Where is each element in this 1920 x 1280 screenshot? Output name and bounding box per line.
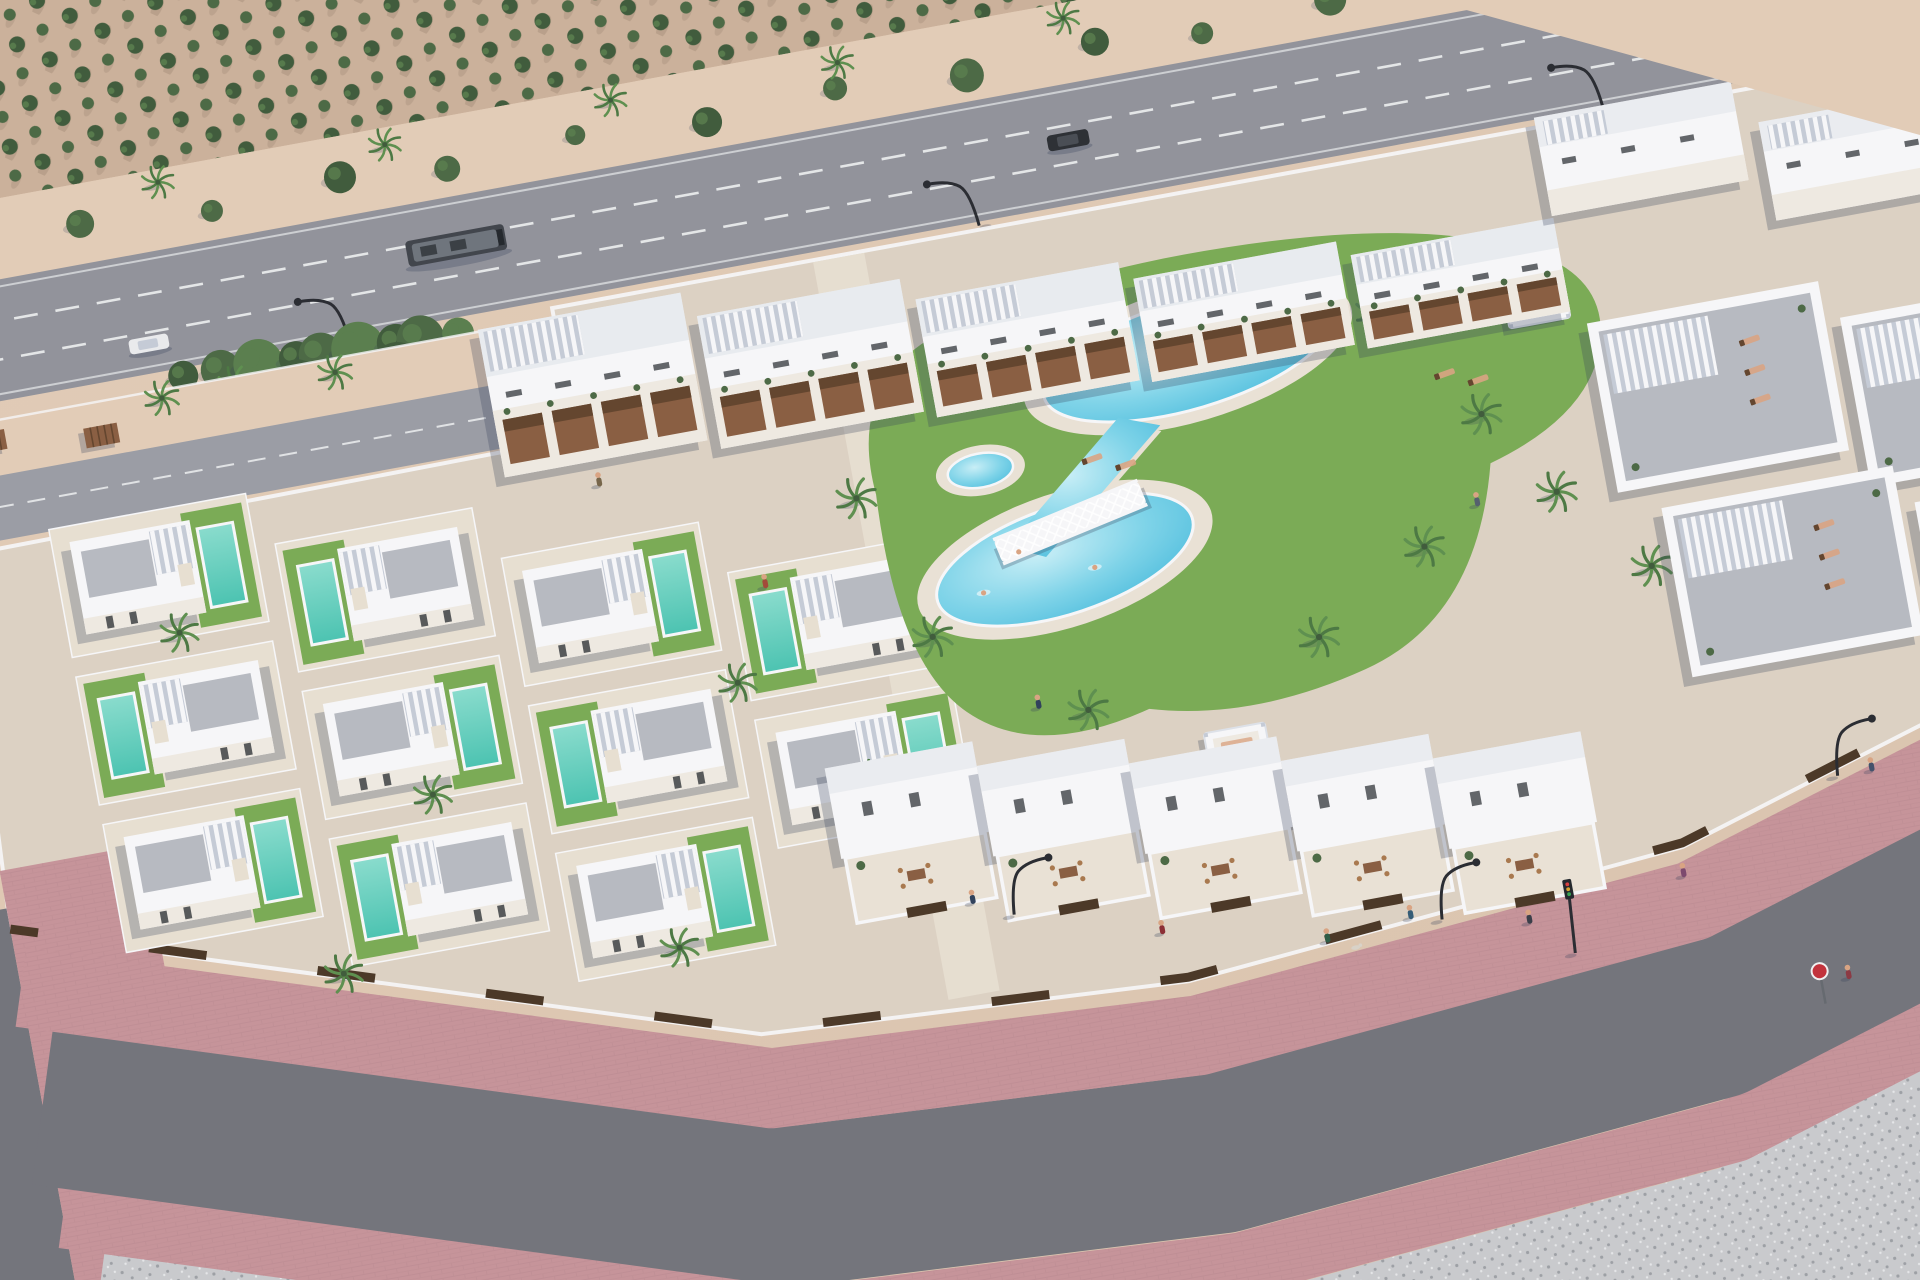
roof-terrace [532, 566, 612, 628]
roof-terrace [181, 671, 261, 733]
roof-terrace [380, 538, 460, 600]
aerial-render [0, 0, 1920, 1280]
roof-terrace [434, 833, 514, 895]
roof-terrace [79, 537, 159, 599]
roof-terrace [586, 861, 666, 923]
roof-terrace [133, 833, 213, 895]
render-stage [0, 0, 1920, 1280]
roof-terrace [332, 699, 412, 761]
roof-terrace [634, 700, 714, 762]
